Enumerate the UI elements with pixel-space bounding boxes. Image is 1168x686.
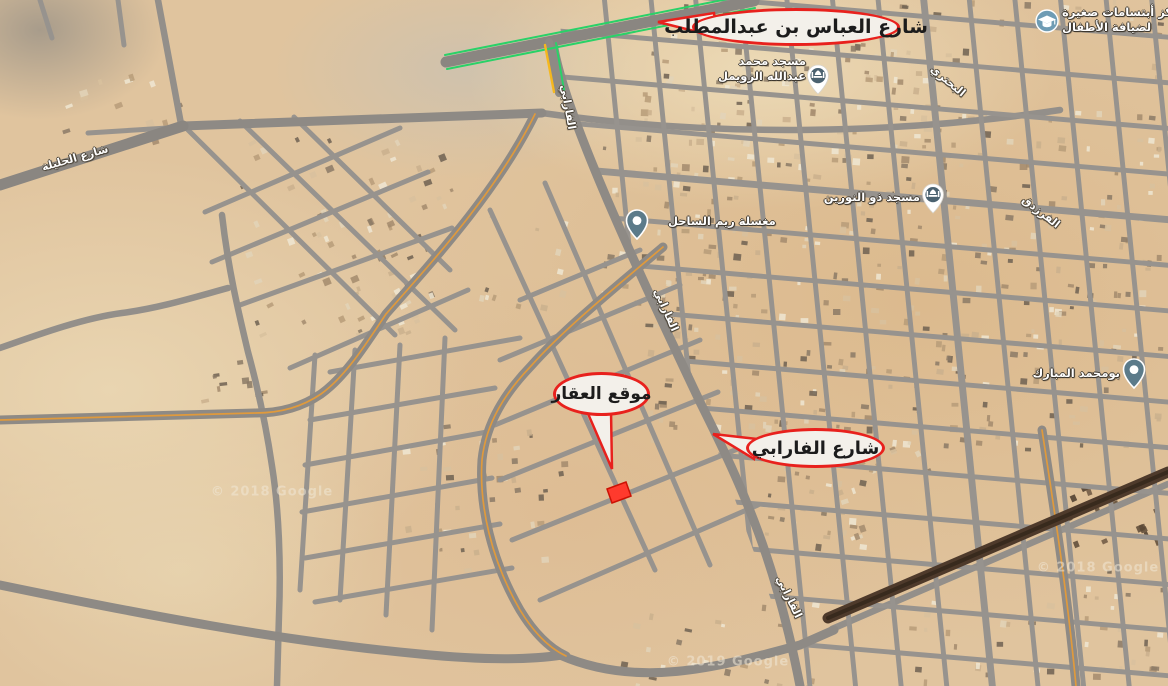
poi-label: مركز أبتسامات صغيرةلضيافة الأطفال	[1062, 5, 1168, 35]
map-canvas[interactable]: شارع العباس بن عبدالمطلب موقع العقار شار…	[0, 0, 1168, 686]
poi-marker-dot[interactable]	[1122, 358, 1146, 389]
callout-farabi-street: شارع الفارابي	[746, 428, 885, 468]
callout-property-location: موقع العقار	[553, 372, 650, 416]
poi-marker-dot[interactable]	[625, 209, 649, 240]
street-name-label: البحتري	[928, 63, 968, 100]
poi-label: مسجد محمدعبدالله الزويمل	[718, 54, 806, 84]
street-name-label: الفارابي	[773, 574, 805, 620]
poi-marker-edu[interactable]	[1035, 9, 1059, 33]
poi-label: مسجد ذو النورين	[824, 190, 920, 205]
dot-icon	[633, 216, 642, 225]
poi-label: مغسلة ريم الساحل	[668, 214, 776, 229]
street-name-label: شارع الحليلة	[40, 142, 110, 173]
callout-abbas-street: شارع العباس بن عبدالمطلب	[692, 8, 900, 46]
map-overlay: شارع العباس بن عبدالمطلب موقع العقار شار…	[0, 0, 1168, 686]
google-watermark: © 2018 Google	[211, 485, 333, 500]
dot-icon	[1130, 365, 1139, 374]
street-name-label: الفارابي	[651, 287, 681, 334]
poi-marker-mosque[interactable]	[806, 64, 830, 95]
poi-label: بومحمد المبارك	[1033, 366, 1120, 381]
google-watermark: © 2018 Google	[1037, 561, 1159, 576]
google-watermark: © 2019 Google	[667, 655, 789, 670]
street-name-label: الفرزدق	[1019, 193, 1062, 231]
poi-marker-mosque[interactable]	[921, 183, 945, 214]
street-name-label: الفارابي	[558, 84, 579, 131]
